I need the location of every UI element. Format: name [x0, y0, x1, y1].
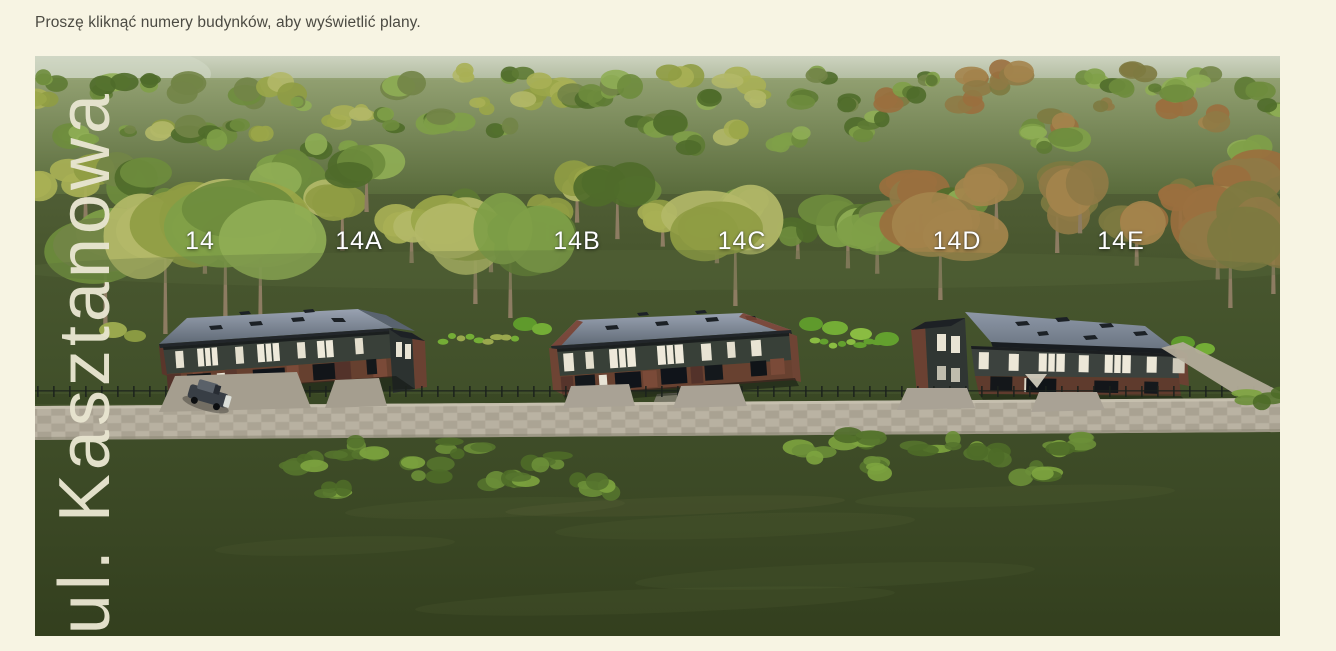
building-link-14c[interactable]: 14C: [718, 228, 767, 256]
building-link-14e[interactable]: 14E: [1097, 228, 1144, 256]
instruction-text: Proszę kliknąć numery budynków, aby wyśw…: [35, 12, 421, 34]
page: { "page": { "background_color": "#f7f4e3…: [0, 0, 1336, 651]
street-name-label: ul. Kasztanowa: [49, 90, 121, 634]
building-link-14a[interactable]: 14A: [335, 228, 382, 256]
building-link-14[interactable]: 14: [185, 228, 215, 256]
building-link-14b[interactable]: 14B: [553, 228, 600, 256]
site-render: ul. Kasztanowa 14 14A 14B 14C 14D 14E: [35, 56, 1280, 636]
site-3d-illustration: [35, 56, 1280, 636]
building-link-14d[interactable]: 14D: [933, 228, 982, 256]
